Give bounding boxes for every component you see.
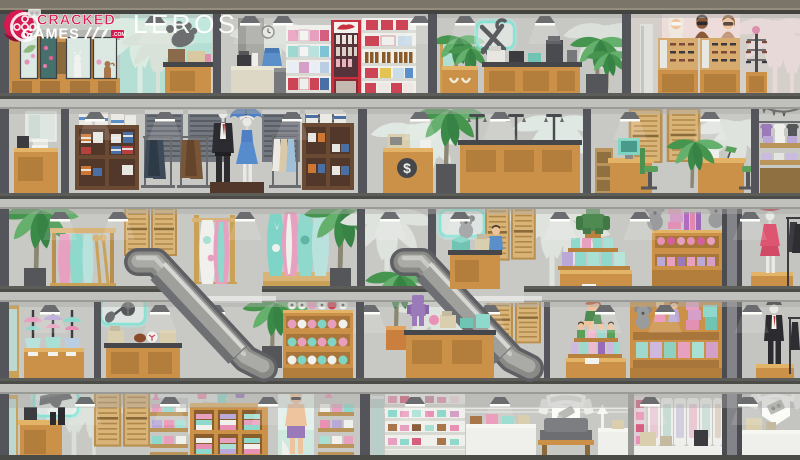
svg-text:$: $ (403, 160, 411, 176)
svg-text:GAMES: GAMES (22, 27, 80, 43)
svg-text:.COM: .COM (113, 32, 126, 38)
svg-text:LEROS: LEROS (133, 9, 239, 39)
